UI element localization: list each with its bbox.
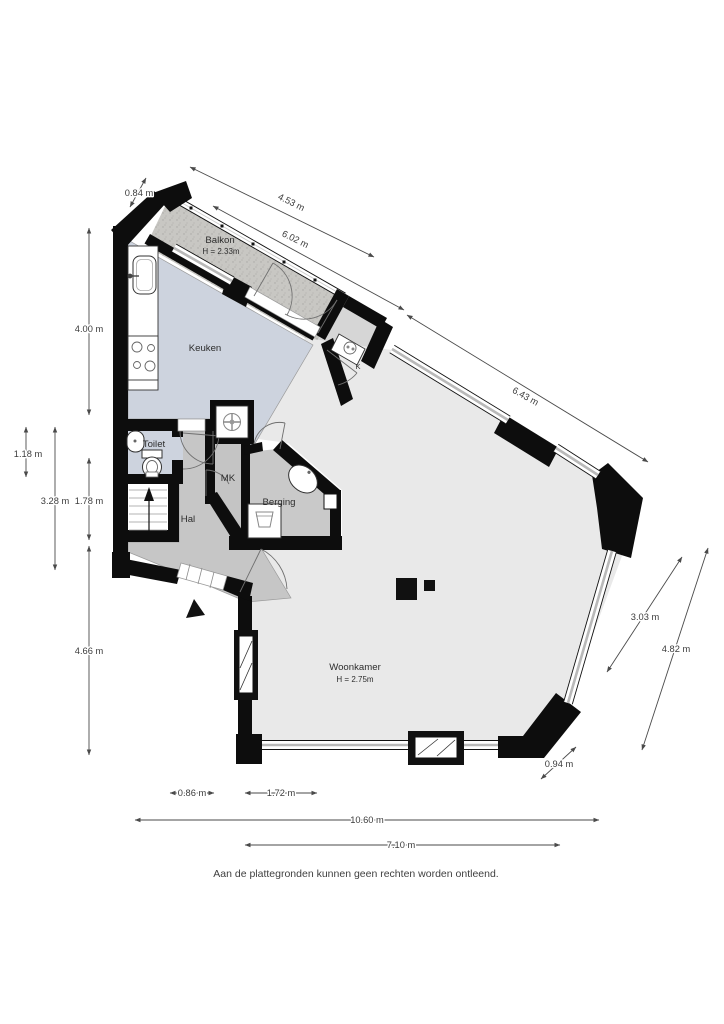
dim-left-a: 1.18 m: [14, 449, 43, 459]
room-label-hal: Hal: [181, 514, 195, 525]
floorplan-image: 0.84 m 4.53 m 6.02 m 6.43 m 4.00 m 1.18 …: [0, 0, 724, 1024]
dim-bottom-total: 10.60 m: [350, 815, 384, 825]
dim-left-top: 4.00 m: [75, 324, 104, 334]
washing-machine-icon: [248, 504, 281, 538]
room-height-woonkamer: H = 2.75m: [336, 675, 373, 684]
room-label-mk: MK: [221, 473, 236, 484]
column-small: [424, 580, 435, 591]
window-box-left: [234, 630, 258, 700]
room-label-berging: Berging: [262, 497, 295, 508]
kitchen-counter: [128, 246, 158, 390]
window-box-bottom: [408, 731, 464, 765]
toilet-icon: [142, 450, 162, 477]
column-large: [396, 578, 417, 600]
dim-balkon-inner: 4.53 m: [276, 192, 306, 214]
dim-left-b: 3.28 m: [41, 496, 70, 506]
dim-balkon-outer: 6.02 m: [280, 229, 310, 251]
dim-bottom-b: 1.72 m: [267, 788, 296, 798]
window-bottom-2: [464, 741, 498, 750]
dim-right-a: 3.03 m: [631, 612, 660, 622]
dim-right-b: 4.82 m: [662, 644, 691, 654]
room-label-balkon: Balkon: [205, 235, 234, 246]
dim-corner-se: 0.94 m: [545, 759, 574, 769]
stove-icon: [128, 336, 158, 380]
dim-bottom-a: 0.86 m: [178, 788, 207, 798]
room-label-boiler: K: [355, 362, 360, 371]
floorplan-page: 0.84 m 4.53 m 6.02 m 6.43 m 4.00 m 1.18 …: [0, 0, 724, 1024]
dim-step-top: 0.84 m: [125, 188, 154, 198]
dim-left-d: 4.66 m: [75, 646, 104, 656]
entrance-arrow-icon: [186, 599, 205, 618]
dim-bottom-inner: 7.10 m: [387, 840, 416, 850]
berging-shaft: [324, 494, 337, 509]
dim-left-c: 1.78 m: [75, 496, 104, 506]
room-label-toilet: Toilet: [143, 439, 166, 450]
room-label-woonkamer: Woonkamer: [329, 662, 381, 673]
ventilation-unit: [216, 406, 248, 438]
window-bottom-1: [262, 741, 408, 750]
room-height-balkon: H = 2.33m: [202, 247, 239, 256]
ventilation-fan-icon: [223, 413, 241, 431]
disclaimer-text: Aan de plattegronden kunnen geen rechten…: [213, 868, 498, 880]
room-label-keuken: Keuken: [189, 343, 222, 354]
dim-facade-ne: 6.43 m: [511, 385, 541, 408]
